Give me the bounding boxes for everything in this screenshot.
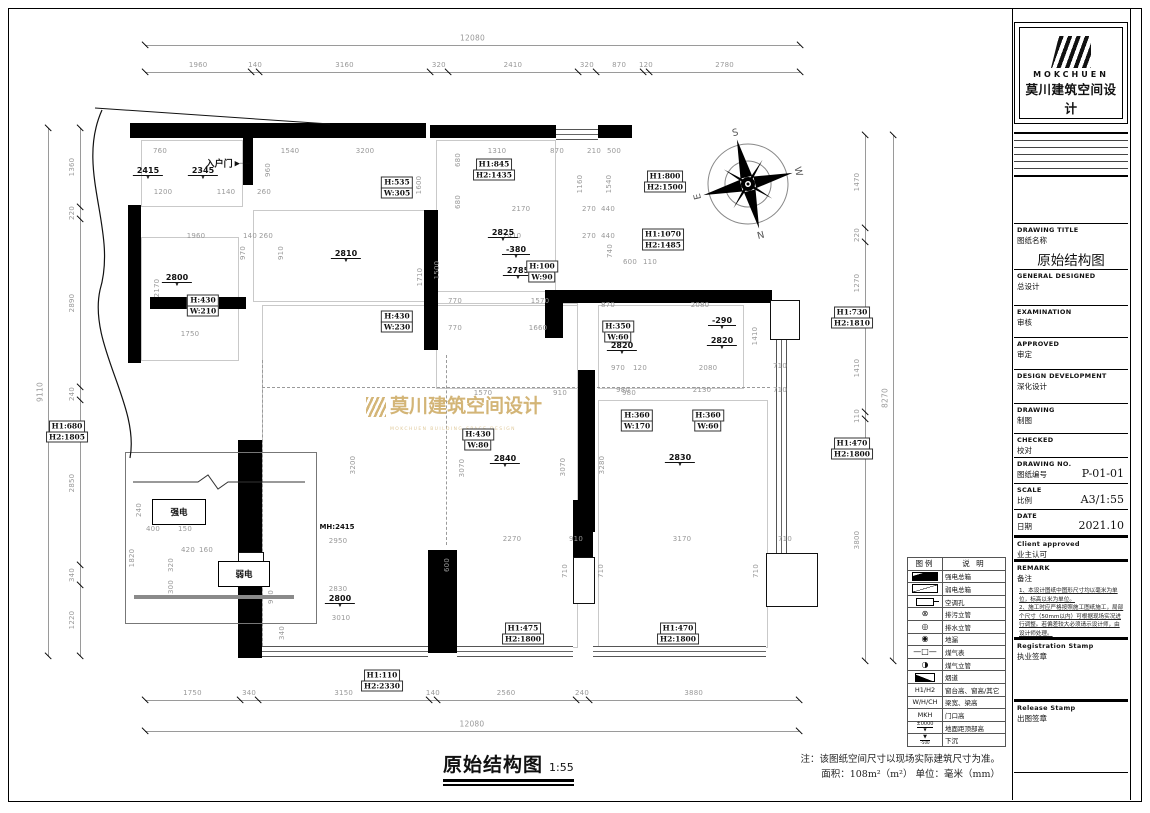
company-logo-icon: [1051, 36, 1091, 68]
beam-size-label: H1:475H2:1800: [502, 624, 544, 645]
elevation-marker: 2825▼: [488, 228, 518, 242]
field-label-en: DRAWING TITLE: [1017, 226, 1125, 234]
beam-size-label: H1:1070H2:1485: [642, 230, 684, 251]
elevation-triangle-icon: ▼: [707, 346, 737, 350]
elevation-marker: 2810▼: [331, 249, 361, 263]
field-label-cn: 校对: [1017, 445, 1125, 456]
elevation-marker: -380▼: [502, 245, 530, 259]
watermark: 莫川建筑空间设计 MOKCHUEN BUILDING SPACE DESIGN: [366, 397, 542, 435]
elevation-marker: 2820▼: [707, 336, 737, 350]
title-block-field: DESIGN DEVELOPMENT深化设计: [1014, 369, 1128, 403]
beam-size-label: H1:680H2:1805: [46, 422, 88, 443]
remark-notes: 1、本设计图纸中图形尺寸均以毫米为单位，标高以米为单位。2、施工时应严格按照施工…: [1017, 587, 1125, 638]
elevation-triangle-icon: ▼: [665, 463, 695, 467]
company-name-cn: 莫川建筑空间设计: [1020, 79, 1122, 117]
field-label-en: Client approved: [1017, 540, 1125, 548]
beam-size-label: H:430W:210: [187, 296, 219, 317]
company-logo-inner: MOKCHUEN 莫川建筑空间设计: [1019, 27, 1123, 119]
title-block-field: DRAWING TITLE图纸名称原始结构图: [1014, 223, 1128, 269]
beam-size-line: H2:1800: [657, 633, 699, 645]
elevation-triangle-icon: ▼: [708, 326, 736, 330]
field-value: 原始结构图: [1017, 249, 1125, 269]
field-value: 2021.10: [1079, 519, 1125, 532]
title-block-field: GENERAL DESIGNED总设计: [1014, 269, 1128, 305]
company-name-en: MOKCHUEN: [1020, 70, 1122, 79]
beam-size-label: H1:470H2:1800: [657, 624, 699, 645]
title-block-field: SCALE比例A3/1:55: [1014, 483, 1128, 509]
company-logo-box: MOKCHUEN 莫川建筑空间设计: [1014, 22, 1128, 124]
field-label-en: APPROVED: [1017, 340, 1125, 348]
elevation-triangle-icon: ▼: [607, 351, 637, 355]
title-block-field: APPROVED审定: [1014, 337, 1128, 369]
title-block-field: DATE日期2021.10: [1014, 509, 1128, 535]
beam-size-line: H2:1805: [46, 431, 88, 443]
field-label-en: EXAMINATION: [1017, 308, 1125, 316]
beam-size-line: W:60: [604, 331, 631, 343]
remark-label-cn: 备注: [1017, 573, 1125, 584]
field-label-en: DESIGN DEVELOPMENT: [1017, 372, 1125, 380]
beam-size-line: H2:1435: [473, 169, 515, 181]
release-stamp-en: Release Stamp: [1017, 704, 1125, 712]
elevation-triangle-icon: ▼: [162, 283, 192, 287]
field-label-cn: 审定: [1017, 349, 1125, 360]
remark-note-line: 2、施工时应严格按照施工图纸施工，局部个尺寸（50mm以内）可根据现场实况进行调…: [1019, 604, 1125, 638]
beam-size-line: W:210: [187, 305, 219, 317]
drawing-sheet: 1960140316032024103208701202780120801750…: [0, 0, 1150, 813]
elevation-triangle-icon: ▼: [488, 238, 518, 242]
beam-size-line: W:305: [381, 187, 413, 199]
beam-size-line: W:170: [621, 420, 653, 432]
elevation-triangle-icon: ▼: [490, 464, 520, 468]
beam-size-line: H2:1500: [644, 181, 686, 193]
beam-size-line: W:90: [528, 271, 555, 283]
elevation-triangle-icon: ▼: [502, 255, 530, 259]
beam-size-label: H:430W:230: [381, 312, 413, 333]
title-block: MOKCHUEN 莫川建筑空间设计 DRAWING TITLE图纸名称原始结构图…: [1014, 22, 1128, 773]
beam-size-label: H1:110H2:2330: [361, 671, 403, 692]
entry-dotted-line: ┈┈: [240, 159, 250, 167]
watermark-cn: 莫川建筑空间设计: [390, 395, 542, 417]
ruled-lines: [1014, 132, 1128, 177]
field-label-cn: 图纸名称: [1017, 235, 1125, 246]
titleblock-divider-right: [1130, 8, 1131, 800]
beam-size-label: H:535W:305: [381, 178, 413, 199]
elevation-triangle-icon: ▼: [331, 259, 361, 263]
field-label-en: DRAWING: [1017, 406, 1125, 414]
door-height-label: MH:2415: [319, 523, 354, 531]
registration-stamp-cn: 执业签章: [1017, 651, 1125, 662]
watermark-en: MOKCHUEN BUILDING SPACE DESIGN: [390, 427, 516, 432]
beam-size-line: H2:1810: [831, 317, 873, 329]
field-label-en: CHECKED: [1017, 436, 1125, 444]
registration-stamp-section: Registration Stamp 执业签章: [1014, 637, 1128, 699]
elevation-triangle-icon: ▼: [133, 176, 163, 180]
beam-size-line: W:230: [381, 321, 413, 333]
beam-size-label: H1:730H2:1810: [831, 308, 873, 329]
beam-size-label: H:360W:170: [621, 411, 653, 432]
beam-size-label: H1:470H2:1800: [831, 439, 873, 460]
elevation-marker: 2840▼: [490, 454, 520, 468]
title-block-field: DRAWING制图: [1014, 403, 1128, 433]
field-label-en: GENERAL DESIGNED: [1017, 272, 1125, 280]
elevation-marker: 2800▼: [325, 594, 355, 608]
beam-size-line: H2:1800: [502, 633, 544, 645]
title-block-field: EXAMINATION审核: [1014, 305, 1128, 337]
elevation-triangle-icon: ▼: [325, 604, 355, 608]
elevation-marker: 2830▼: [665, 453, 695, 467]
registration-stamp-en: Registration Stamp: [1017, 642, 1125, 650]
beam-size-label: H1:845H2:1435: [473, 160, 515, 181]
remark-label-en: REMARK: [1017, 564, 1125, 572]
elevation-marker: 2415▼: [133, 166, 163, 180]
beam-size-label: H:350W:60: [602, 322, 634, 343]
beam-size-label: H:100W:90: [526, 262, 558, 283]
remark-section: REMARK 备注 1、本设计图纸中图形尺寸均以毫米为单位，标高以米为单位。2、…: [1014, 559, 1128, 637]
elevation-marker: 2820▼: [607, 341, 637, 355]
field-label-cn: 总设计: [1017, 281, 1125, 292]
elevation-triangle-icon: ▼: [188, 176, 218, 180]
elevation-marker: 2800▼: [162, 273, 192, 287]
field-label-cn: 制图: [1017, 415, 1125, 426]
beam-size-line: W:80: [464, 439, 491, 451]
release-stamp-cn: 出图签章: [1017, 713, 1125, 724]
entry-door-text: 入户门: [206, 157, 233, 170]
titleblock-divider-left: [1012, 8, 1013, 800]
field-value: P-01-01: [1082, 467, 1124, 480]
beam-size-label: H:360W:60: [692, 411, 724, 432]
beam-size-line: H2:1800: [831, 448, 873, 460]
watermark-logo-icon: [366, 397, 386, 417]
remark-note-line: 1、本设计图纸中图形尺寸均以毫米为单位，标高以米为单位。: [1019, 587, 1125, 604]
beam-size-line: H2:2330: [361, 680, 403, 692]
beam-size-label: H:430W:80: [462, 430, 494, 451]
elevation-marker: -290▼: [708, 316, 736, 330]
title-block-field: DRAWING NO.图纸编号P-01-01: [1014, 457, 1128, 483]
title-block-fields: DRAWING TITLE图纸名称原始结构图GENERAL DESIGNED总设…: [1014, 223, 1128, 559]
beam-size-line: W:60: [694, 420, 721, 432]
beam-size-line: H2:1485: [642, 239, 684, 251]
field-label-cn: 审核: [1017, 317, 1125, 328]
release-stamp-section: Release Stamp 出图签章: [1014, 699, 1128, 773]
title-block-field: Client approved业主认可: [1014, 535, 1128, 559]
field-label-cn: 深化设计: [1017, 381, 1125, 392]
field-value: A3/1:55: [1081, 493, 1124, 506]
entry-door-label: 入户门 ▶ ┈┈: [206, 157, 251, 170]
title-block-field: CHECKED校对: [1014, 433, 1128, 457]
beam-size-label: H1:800H2:1500: [644, 172, 686, 193]
